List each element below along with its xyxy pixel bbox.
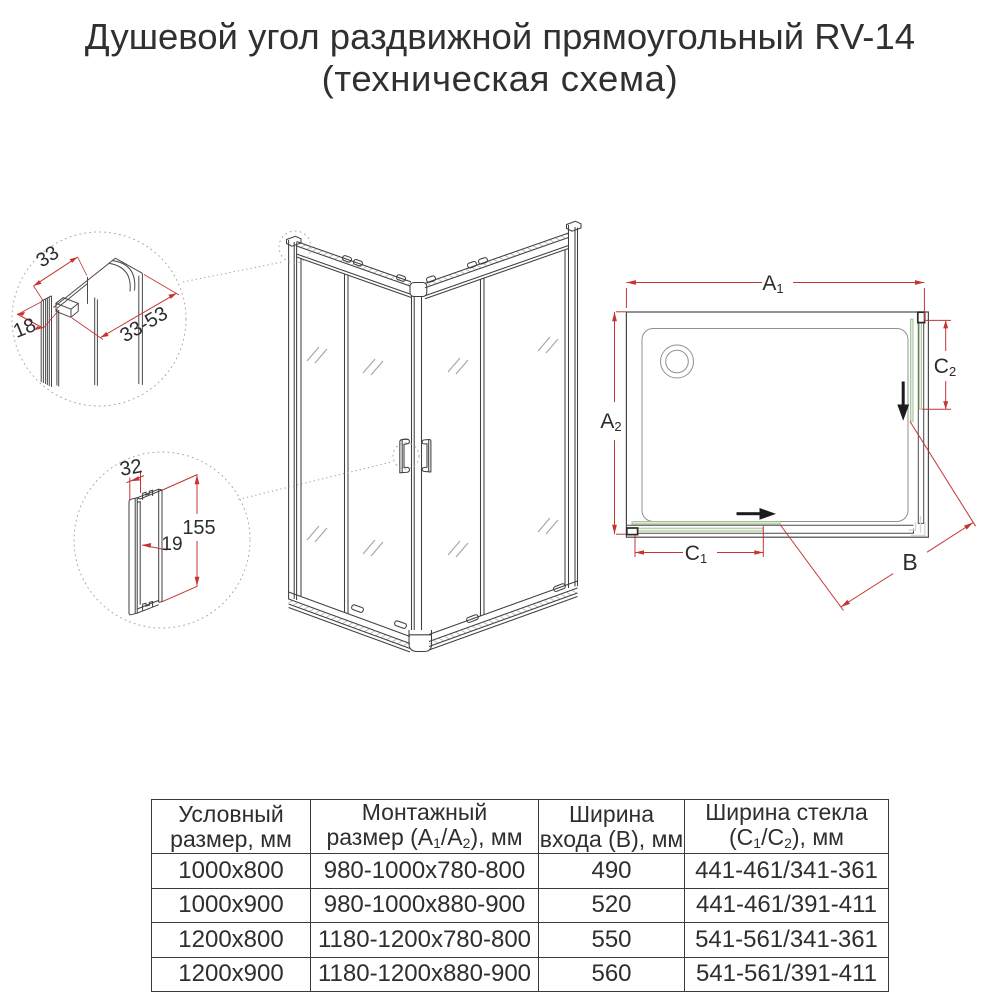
svg-text:A1: A1 (762, 272, 783, 296)
svg-text:C1: C1 (685, 542, 707, 566)
svg-text:18: 18 (10, 314, 39, 343)
svg-text:C2: C2 (934, 355, 956, 379)
svg-text:155: 155 (182, 517, 215, 539)
svg-text:A2: A2 (600, 410, 621, 434)
svg-text:19: 19 (161, 534, 182, 555)
svg-text:B: B (902, 549, 917, 575)
svg-text:33-53: 33-53 (116, 302, 171, 347)
svg-text:32: 32 (118, 455, 144, 481)
svg-text:33: 33 (32, 242, 63, 273)
